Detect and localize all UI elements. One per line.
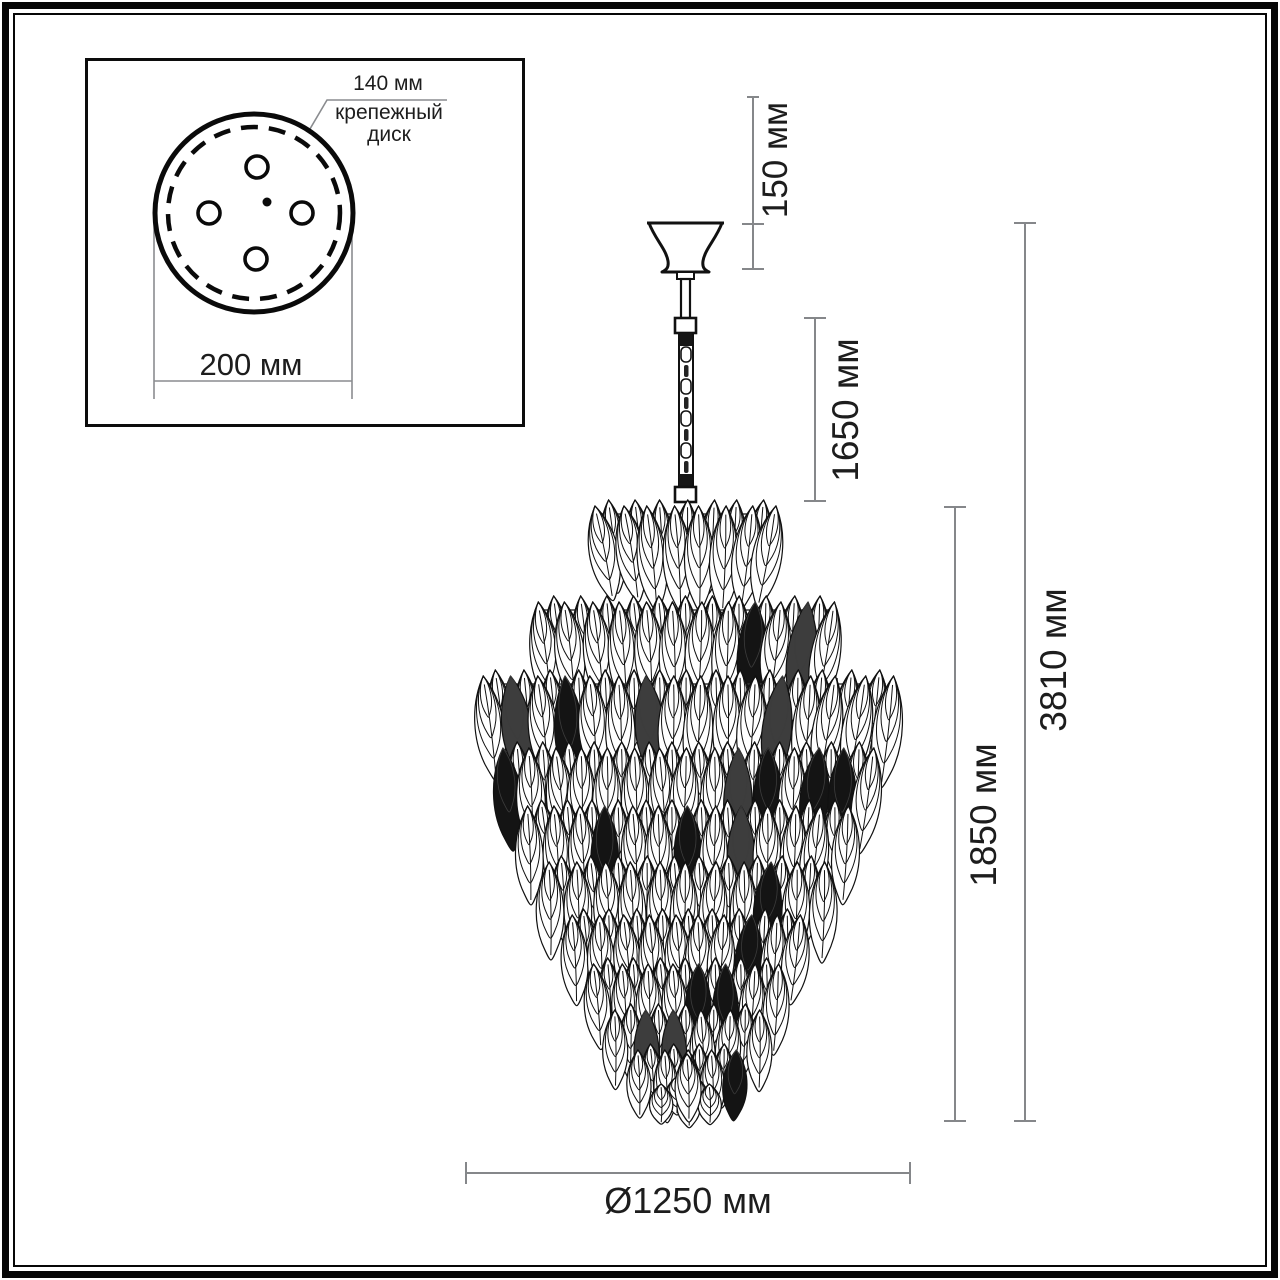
dimension-line — [752, 97, 754, 269]
mount-diameter-label: 140 мм — [318, 72, 458, 96]
canopy — [647, 223, 724, 279]
disc-outer-diameter-label: 200 мм — [171, 347, 331, 383]
chain — [675, 318, 696, 510]
tick — [909, 1162, 911, 1184]
suspension-rod — [681, 279, 690, 319]
diameter-label: Ø1250 мм — [568, 1180, 808, 1222]
mount-hole-top — [246, 156, 268, 178]
mount-part-label: крепежный диск — [326, 102, 452, 146]
tick — [1014, 1120, 1036, 1122]
total-height-label: 3810 мм — [1033, 585, 1075, 735]
chain-links — [681, 347, 691, 473]
tick — [944, 506, 966, 508]
mount-hole-right — [291, 202, 313, 224]
body-height-label: 1850 мм — [963, 740, 1005, 890]
tick — [944, 1120, 966, 1122]
disc-center-point — [263, 198, 272, 207]
canopy-height-label: 150 мм — [755, 85, 797, 235]
tick — [1014, 222, 1036, 224]
disc-outer-circle — [155, 114, 353, 312]
drawing-sheet: 140 мм крепежный диск 200 мм 150 мм 1650… — [0, 0, 1280, 1280]
mount-hole-left — [198, 202, 220, 224]
tick — [804, 500, 826, 502]
dimension-line — [466, 1172, 910, 1174]
dimension-line — [954, 507, 956, 1122]
tick — [804, 317, 826, 319]
tick — [465, 1162, 467, 1184]
dimension-line — [1024, 223, 1026, 1122]
tick — [742, 268, 764, 270]
chain-length-label: 1650 мм — [825, 335, 867, 485]
dimension-line — [814, 318, 816, 502]
glass-leaf-tiers — [469, 498, 908, 1128]
mount-hole-bottom — [245, 248, 267, 270]
